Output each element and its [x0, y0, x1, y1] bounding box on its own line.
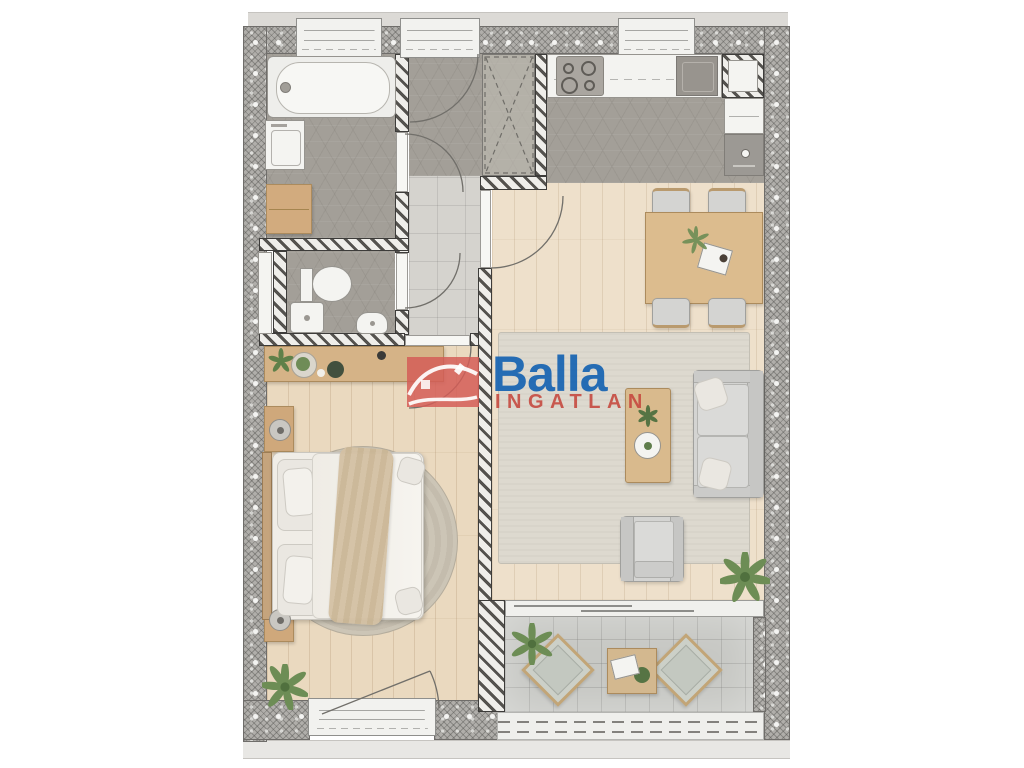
shower-drain: [304, 315, 310, 321]
sink-basin: [682, 62, 714, 92]
oven-handle: [733, 165, 755, 167]
faucet-icon: [280, 82, 291, 93]
living-room-plant: [720, 552, 770, 602]
wall-toilet-left: [273, 251, 287, 333]
wall-toilet-hall: [395, 310, 409, 335]
watermark-house-logo-icon: [407, 357, 479, 407]
coffee-table-plate: [634, 432, 661, 459]
bathtub: [267, 56, 396, 118]
console-plant: [268, 348, 294, 374]
bedroom-french-door: [308, 698, 436, 736]
wall-closet-kitchen: [535, 54, 547, 176]
console-tray-plant: [296, 357, 310, 371]
oven-knob: [741, 149, 750, 158]
duct-panel: [258, 252, 272, 334]
kitchen-window: [618, 18, 695, 58]
built-in-wardrobe: [482, 54, 535, 176]
toilet-door: [396, 253, 408, 310]
console-sphere: [327, 361, 344, 378]
bedroom-door: [405, 335, 470, 346]
watermark-subtitle-text: INGATLAN: [495, 392, 649, 412]
hallway-lower-floor: [409, 176, 480, 346]
kitchen-shaft-inner: [728, 60, 758, 92]
sofa-backrest: [747, 371, 763, 497]
washing-machine-knobs: [271, 124, 287, 127]
exterior-strip-bottom: [243, 740, 790, 759]
armchair: [620, 516, 684, 582]
wall-bathroom-hall-upper: [395, 54, 409, 132]
bathroom-cabinet: [266, 184, 312, 234]
balcony-railing: [497, 712, 764, 740]
oven: [724, 134, 764, 176]
armchair-seat: [634, 521, 674, 565]
wall-bedroom-balcony: [478, 600, 505, 712]
washing-machine: [265, 120, 305, 170]
cabinet-shelf-line: [269, 209, 309, 210]
cooktop: [556, 56, 604, 96]
bathroom-window: [296, 18, 382, 58]
bed-pillow: [282, 555, 316, 605]
armchair-arm-left: [621, 517, 634, 581]
console-item: [377, 351, 386, 360]
balcony-pillar: [753, 617, 766, 712]
wall-right: [764, 26, 790, 740]
bedroom-plant: [262, 664, 308, 710]
plate-plant-dot: [644, 442, 652, 450]
wc-bowl: [312, 266, 352, 302]
dining-chair: [652, 298, 690, 328]
armchair-back: [634, 561, 674, 578]
wall-bedroom-top: [259, 333, 405, 346]
balcony-sliding-door: [505, 600, 764, 617]
kitchen-sink: [676, 56, 718, 96]
corner-washbasin: [356, 312, 388, 334]
wall-hall-living: [480, 176, 547, 190]
wall-bath-toilet: [259, 238, 409, 251]
balcony-plant: [511, 623, 553, 665]
floorplan-image: Balla INGATLAN: [0, 0, 1024, 768]
bed-headboard: [262, 452, 272, 620]
bathtub-basin: [276, 62, 390, 114]
living-room-door: [480, 190, 491, 268]
kitchen-tall-cabinet: [724, 98, 764, 134]
basin-drain: [370, 321, 375, 326]
nightstand-lamp: [269, 419, 291, 441]
coffee-cup: [719, 253, 729, 263]
shower-tray: [290, 302, 324, 333]
washing-machine-door: [271, 130, 301, 166]
lounge-cushion: [661, 645, 712, 696]
wall-bedroom-living: [478, 268, 492, 618]
balcony-side-table: [607, 648, 657, 694]
sofa: [693, 370, 764, 498]
entry-door: [400, 18, 480, 58]
bathroom-door: [396, 132, 408, 192]
dining-table-plant: [682, 226, 710, 254]
dining-chair: [708, 298, 746, 328]
bed-pillow: [282, 467, 316, 517]
console-dot: [317, 369, 325, 377]
